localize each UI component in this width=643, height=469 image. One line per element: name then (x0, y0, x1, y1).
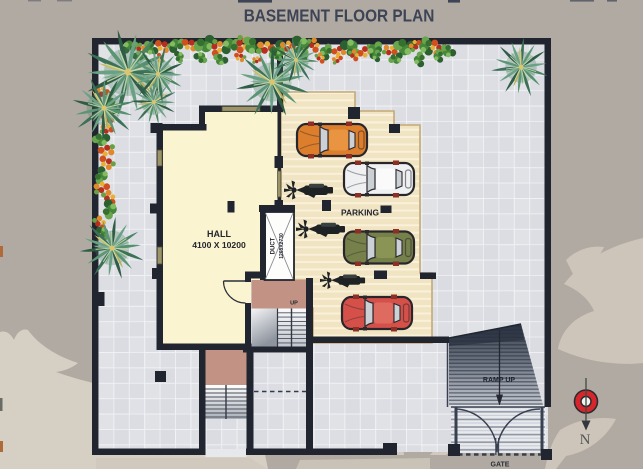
svg-text:DUCT: DUCT (271, 237, 277, 254)
svg-text:1265X2730: 1265X2730 (279, 233, 285, 259)
svg-text:BASEMENT FLOOR PLAN: BASEMENT FLOOR PLAN (244, 7, 435, 26)
svg-text:UP: UP (290, 301, 298, 307)
svg-text:HALL: HALL (207, 229, 231, 239)
svg-text:N: N (580, 432, 591, 448)
svg-text:RAMP UP: RAMP UP (483, 377, 515, 384)
svg-text:GATE: GATE (491, 462, 510, 469)
svg-text:PARKING: PARKING (341, 208, 379, 218)
svg-text:4100 X 10200: 4100 X 10200 (192, 240, 246, 250)
